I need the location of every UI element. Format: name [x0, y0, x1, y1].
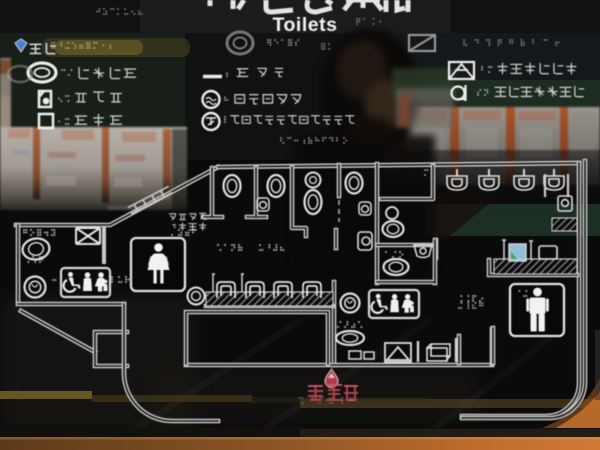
svg-text:Toilets: Toilets	[273, 14, 338, 36]
